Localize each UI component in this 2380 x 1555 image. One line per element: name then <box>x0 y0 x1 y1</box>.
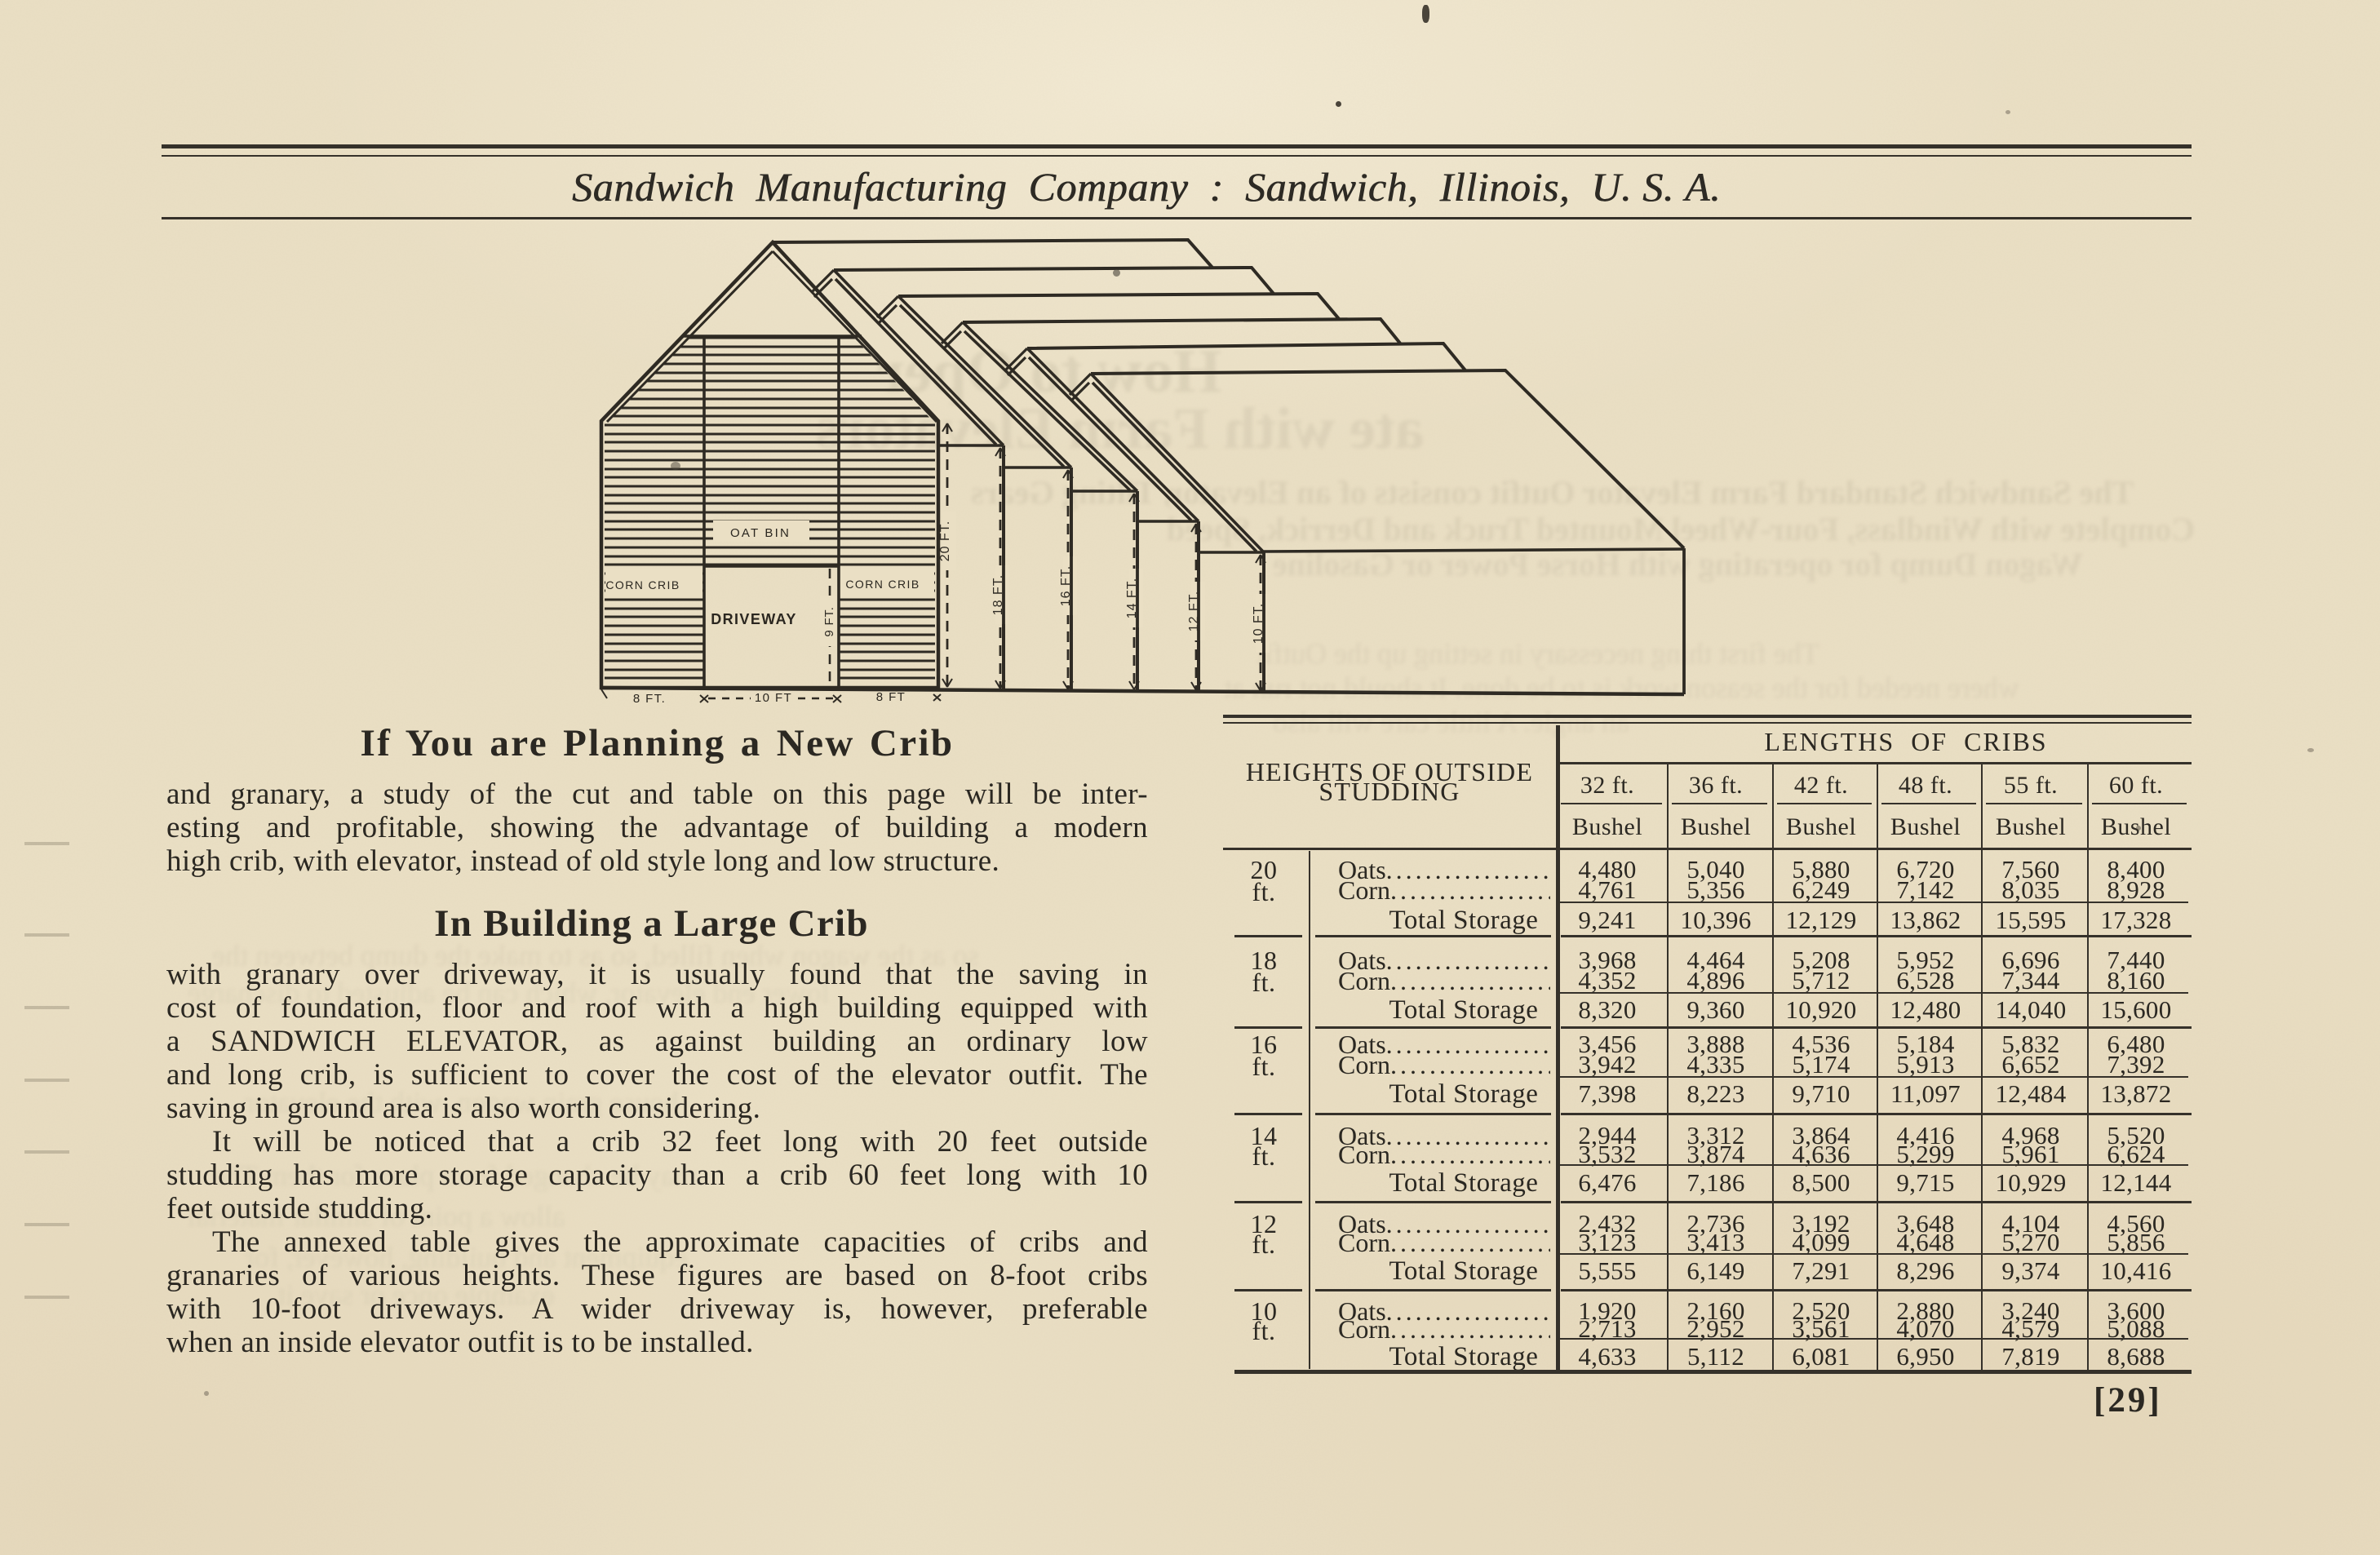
svg-text:20 FT.: 20 FT. <box>938 521 952 561</box>
svg-text:10 FT: 10 FT <box>755 691 792 705</box>
svg-text:DRIVEWAY: DRIVEWAY <box>711 611 797 627</box>
svg-text:8 FT.: 8 FT. <box>633 692 666 706</box>
svg-text:OAT BIN: OAT BIN <box>730 526 791 540</box>
svg-text:CORN CRIB: CORN CRIB <box>845 578 920 591</box>
svg-text:CORN CRIB: CORN CRIB <box>605 578 680 591</box>
svg-text:8 FT: 8 FT <box>876 690 906 704</box>
svg-text:9 FT.: 9 FT. <box>822 606 836 636</box>
